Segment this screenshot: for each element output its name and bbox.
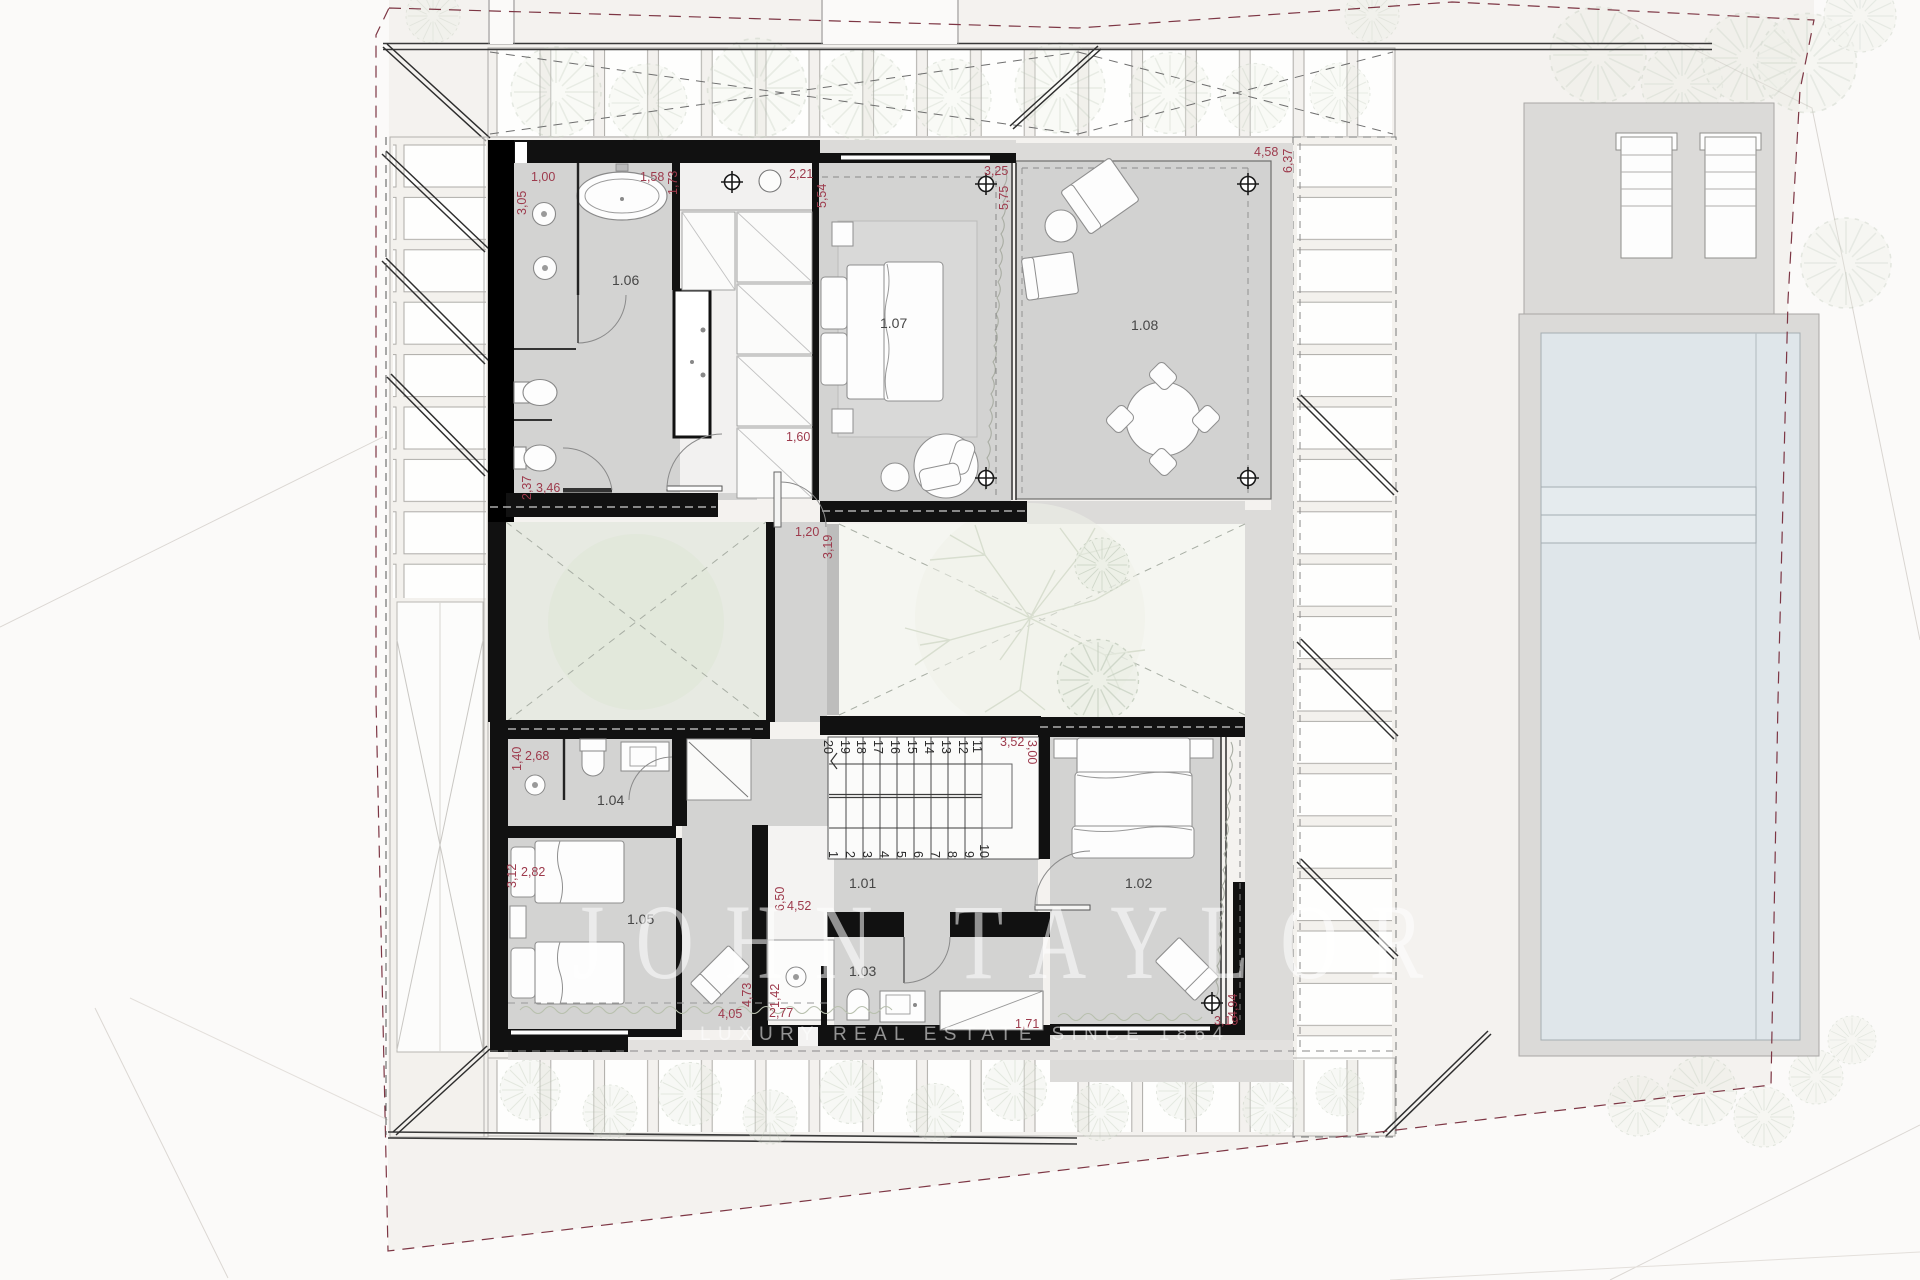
svg-text:5: 5 [894,851,908,858]
svg-text:12: 12 [956,740,970,754]
svg-text:1.08: 1.08 [1131,317,1158,333]
svg-text:1,20: 1,20 [795,525,819,539]
svg-text:10: 10 [977,844,991,858]
svg-text:1,73: 1,73 [666,171,680,195]
svg-text:14: 14 [922,740,936,754]
svg-text:1,58: 1,58 [640,170,664,184]
svg-text:1,00: 1,00 [531,170,555,184]
svg-text:JOHN TAYLOR: JOHN TAYLOR [573,884,1455,1002]
svg-text:16: 16 [888,740,902,754]
svg-text:1.04: 1.04 [597,792,624,808]
svg-text:2,82: 2,82 [521,865,545,879]
svg-text:1.06: 1.06 [612,272,639,288]
svg-text:3,19: 3,19 [821,535,835,559]
svg-text:11: 11 [970,740,984,753]
svg-text:5,75: 5,75 [997,186,1011,210]
svg-text:2,68: 2,68 [525,749,549,763]
svg-text:4,58: 4,58 [1254,145,1278,159]
svg-text:2,77: 2,77 [769,1006,793,1020]
svg-text:9: 9 [962,851,976,858]
svg-text:6: 6 [911,851,925,858]
svg-text:4,05: 4,05 [718,1007,742,1021]
svg-text:2,21: 2,21 [789,167,813,181]
svg-text:7: 7 [928,851,942,858]
svg-text:4: 4 [877,851,891,858]
svg-text:1: 1 [826,851,840,858]
svg-text:2: 2 [843,851,857,858]
svg-text:17: 17 [871,740,885,754]
svg-text:5,54: 5,54 [815,184,829,208]
svg-text:3,25: 3,25 [984,164,1008,178]
svg-text:3,12: 3,12 [505,864,519,888]
svg-text:3: 3 [860,851,874,858]
svg-text:8: 8 [945,851,959,858]
svg-text:3,46: 3,46 [536,481,560,495]
svg-text:3,00: 3,00 [1025,740,1039,764]
svg-text:13: 13 [939,740,953,754]
svg-text:1,60: 1,60 [786,430,810,444]
svg-text:18: 18 [854,740,868,754]
svg-text:19: 19 [838,740,852,754]
svg-text:1.07: 1.07 [880,315,907,331]
svg-text:20: 20 [821,740,835,754]
svg-text:3,05: 3,05 [515,191,529,215]
svg-text:2,37: 2,37 [520,476,534,500]
svg-text:6,37: 6,37 [1281,149,1295,173]
svg-text:1,40: 1,40 [510,747,524,771]
svg-text:15: 15 [905,740,919,754]
svg-text:3,52: 3,52 [1000,735,1024,749]
